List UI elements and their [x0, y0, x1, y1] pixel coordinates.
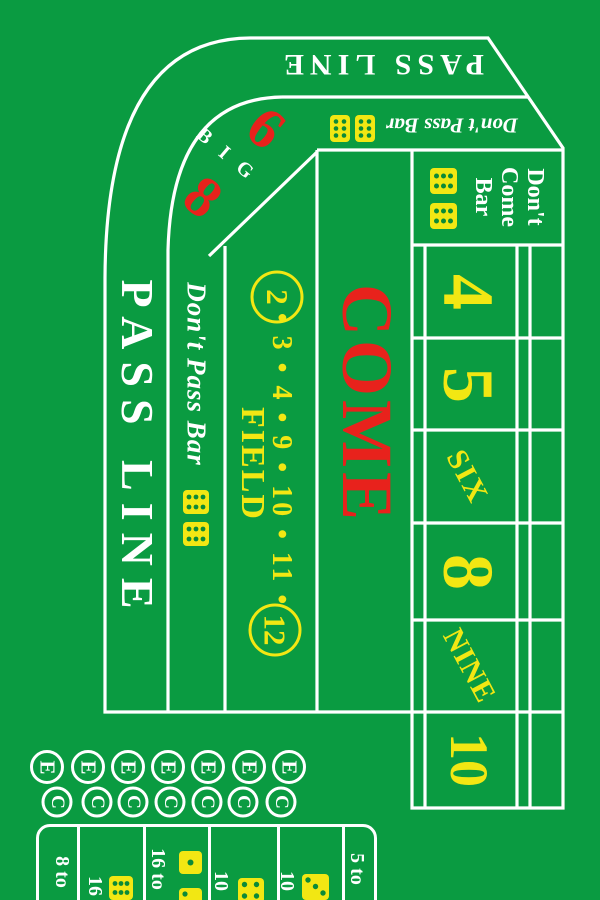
- point-box-4[interactable]: 4: [432, 274, 504, 310]
- prop-bet-2[interactable]: 16: [85, 876, 105, 896]
- pass-line-top-area[interactable]: PASS LINE: [278, 49, 484, 79]
- field-twelve-label: 12: [260, 615, 291, 646]
- eleven-bet-circle[interactable]: E: [111, 750, 145, 784]
- eleven-label: E: [117, 760, 138, 774]
- eleven-label: E: [77, 760, 98, 774]
- prop-bet-4[interactable]: 10: [211, 871, 231, 891]
- eleven-bet-circle[interactable]: E: [191, 750, 225, 784]
- craps-label: C: [197, 795, 216, 809]
- point-box-5[interactable]: 5: [432, 367, 504, 403]
- eleven-label: E: [157, 760, 178, 774]
- eleven-label: E: [36, 760, 57, 774]
- die-four-icon: [237, 877, 265, 900]
- craps-label: C: [123, 795, 142, 809]
- field-two-label: 2: [262, 289, 293, 305]
- eleven-bet-circle[interactable]: E: [232, 750, 266, 784]
- eleven-bet-circle[interactable]: E: [272, 750, 306, 784]
- craps-table: PASS LINE Don't Pass Bar 6 B I G 8 PASS …: [0, 0, 600, 900]
- point-box-10[interactable]: 10: [442, 733, 496, 787]
- field-label: FIELD: [235, 407, 269, 521]
- prop-bet-3[interactable]: 16 to: [148, 848, 168, 890]
- eleven-label: E: [238, 760, 259, 774]
- craps-label: C: [87, 795, 106, 809]
- craps-label: C: [47, 795, 66, 809]
- dice-six-six-icon: [329, 114, 377, 144]
- die-one-icon: [178, 850, 203, 875]
- craps-bet-circle[interactable]: C: [192, 787, 223, 818]
- prop-bet-1[interactable]: 8 to: [52, 856, 72, 888]
- eleven-label: E: [278, 760, 299, 774]
- craps-bet-circle[interactable]: C: [82, 787, 113, 818]
- dont-come-line2: Come: [496, 167, 522, 227]
- die-two-icon: [178, 887, 203, 900]
- craps-label: C: [271, 795, 290, 809]
- prop-divider: [77, 827, 80, 900]
- dont-pass-bar-top-area[interactable]: Don't Pass Bar: [386, 115, 518, 136]
- come-area[interactable]: COME: [331, 284, 403, 524]
- craps-label: C: [233, 795, 252, 809]
- prop-divider: [342, 827, 345, 900]
- craps-bet-circle[interactable]: C: [155, 787, 186, 818]
- dont-come-line1: Don't: [522, 167, 548, 227]
- dont-come-bar-area[interactable]: Don't Come Bar: [470, 167, 548, 227]
- prop-divider: [143, 827, 146, 900]
- craps-label: C: [160, 795, 179, 809]
- die-six-icon: [108, 875, 134, 900]
- dice-six-six-icon: [182, 489, 210, 548]
- eleven-bet-circle[interactable]: E: [30, 750, 64, 784]
- die-three-icon: [301, 873, 330, 900]
- dont-pass-bar-left-area[interactable]: Don't Pass Bar: [183, 282, 210, 466]
- craps-bet-circle[interactable]: C: [118, 787, 149, 818]
- eleven-bet-circle[interactable]: E: [151, 750, 185, 784]
- field-numbers[interactable]: • 3 • 4 • 9 • 10 • 11 •: [267, 313, 295, 607]
- prop-bet-5[interactable]: 10: [277, 871, 297, 891]
- dont-come-line3: Bar: [470, 167, 496, 227]
- eleven-bet-circle[interactable]: E: [71, 750, 105, 784]
- dice-six-six-icon: [429, 167, 459, 231]
- craps-bet-circle[interactable]: C: [266, 787, 297, 818]
- craps-bet-circle[interactable]: C: [228, 787, 259, 818]
- field-twelve-circle[interactable]: 12: [249, 604, 302, 657]
- eleven-label: E: [197, 760, 218, 774]
- pass-line-left-area[interactable]: PASS LINE: [114, 279, 160, 620]
- point-box-8[interactable]: 8: [432, 554, 504, 590]
- prop-bet-6[interactable]: 5 to: [347, 853, 367, 885]
- craps-bet-circle[interactable]: C: [42, 787, 73, 818]
